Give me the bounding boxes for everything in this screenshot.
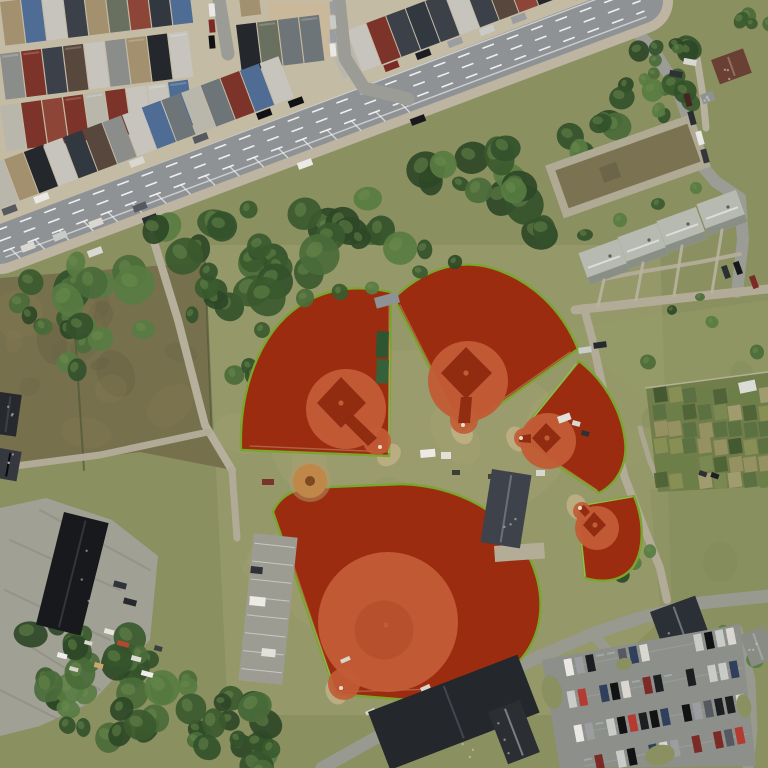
community-gardens bbox=[646, 372, 768, 492]
satellite-image-viewport bbox=[0, 0, 768, 768]
aerial-imagery-canvas bbox=[0, 0, 768, 768]
baseball-field-annotation-field-4-southeast bbox=[573, 496, 642, 581]
